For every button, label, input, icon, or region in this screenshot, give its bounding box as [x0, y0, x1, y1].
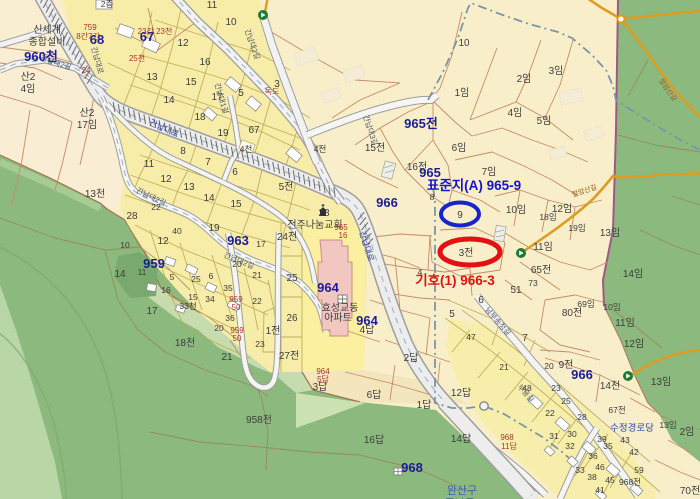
svg-text:11: 11	[138, 267, 147, 277]
svg-text:12임: 12임	[624, 337, 644, 350]
svg-text:24전: 24전	[277, 231, 297, 243]
svg-text:13임: 13임	[651, 375, 671, 388]
svg-text:1임: 1임	[455, 86, 470, 99]
svg-text:15: 15	[230, 199, 242, 210]
svg-text:964: 964	[317, 280, 339, 295]
svg-text:9: 9	[457, 210, 463, 221]
svg-text:5전: 5전	[279, 181, 294, 193]
svg-text:7: 7	[522, 333, 528, 344]
svg-text:완산구: 완산구	[447, 484, 477, 497]
svg-text:7: 7	[205, 157, 211, 168]
svg-text:8: 8	[430, 192, 435, 202]
svg-text:12: 12	[177, 38, 189, 49]
svg-text:70전: 70전	[680, 485, 700, 497]
svg-text:16: 16	[199, 57, 211, 68]
svg-text:31: 31	[549, 431, 559, 441]
svg-text:18천: 18천	[175, 337, 195, 349]
svg-text:958천: 958천	[246, 414, 272, 426]
svg-text:759: 759	[83, 23, 97, 32]
svg-text:17: 17	[256, 239, 266, 249]
svg-text:6: 6	[478, 295, 484, 306]
svg-text:11임: 11임	[533, 240, 553, 253]
svg-text:968: 968	[500, 433, 514, 442]
svg-text:965전: 965전	[404, 116, 438, 131]
svg-text:6임: 6임	[452, 141, 467, 154]
svg-text:13: 13	[146, 72, 158, 83]
svg-text:16: 16	[339, 231, 348, 240]
svg-text:10: 10	[120, 240, 130, 250]
svg-text:21: 21	[221, 352, 233, 363]
svg-text:22: 22	[252, 296, 262, 306]
svg-text:50: 50	[233, 334, 242, 343]
svg-text:표준지(A) 965-9: 표준지(A) 965-9	[427, 178, 521, 193]
svg-text:16답: 16답	[364, 434, 384, 446]
svg-text:23: 23	[551, 383, 561, 393]
svg-text:27전: 27전	[279, 350, 299, 362]
svg-text:18: 18	[194, 112, 206, 123]
svg-text:2임: 2임	[517, 72, 532, 85]
svg-text:43: 43	[620, 435, 630, 445]
svg-text:28: 28	[318, 208, 330, 219]
svg-text:59: 59	[634, 465, 644, 475]
svg-text:28: 28	[577, 412, 587, 422]
svg-text:19임: 19임	[568, 223, 585, 233]
svg-text:18임: 18임	[539, 212, 556, 222]
svg-text:신세계: 신세계	[33, 24, 61, 36]
svg-text:13임: 13임	[600, 226, 620, 239]
svg-text:14천: 14천	[600, 380, 620, 392]
svg-text:51: 51	[510, 285, 522, 296]
svg-text:963: 963	[227, 233, 249, 248]
svg-text:24: 24	[82, 66, 91, 75]
svg-text:6: 6	[232, 167, 238, 178]
svg-text:10임: 10임	[603, 302, 620, 312]
svg-text:16전: 16전	[407, 161, 427, 173]
svg-text:28: 28	[126, 211, 138, 222]
svg-text:19: 19	[208, 223, 220, 234]
svg-text:67전: 67전	[608, 405, 625, 415]
svg-text:9전: 9전	[559, 359, 574, 371]
svg-text:2임: 2임	[680, 425, 695, 438]
svg-text:10: 10	[225, 17, 237, 28]
svg-text:종합설비: 종합설비	[29, 36, 66, 48]
svg-text:50: 50	[232, 303, 241, 312]
svg-text:73: 73	[528, 278, 538, 288]
svg-text:15: 15	[185, 77, 197, 88]
svg-text:6: 6	[209, 271, 214, 281]
svg-text:5임: 5임	[537, 114, 552, 127]
svg-text:5: 5	[238, 88, 244, 99]
svg-text:46: 46	[595, 462, 605, 472]
svg-text:968: 968	[401, 460, 423, 475]
svg-text:65전: 65전	[531, 264, 551, 276]
svg-text:23간 23천: 23간 23천	[138, 26, 173, 36]
svg-text:38: 38	[587, 472, 597, 482]
svg-text:36: 36	[225, 313, 235, 323]
svg-text:34: 34	[205, 294, 215, 304]
svg-text:4천: 4천	[240, 144, 253, 154]
svg-text:10임: 10임	[506, 203, 526, 216]
svg-text:966: 966	[376, 195, 398, 210]
svg-text:4임: 4임	[21, 82, 36, 95]
svg-text:4전: 4전	[314, 144, 327, 154]
svg-text:33천: 33천	[179, 301, 196, 311]
svg-text:17임: 17임	[77, 118, 97, 131]
svg-text:11임: 11임	[615, 316, 635, 329]
svg-text:25: 25	[286, 273, 298, 284]
svg-text:산2: 산2	[80, 107, 95, 119]
svg-text:33: 33	[575, 465, 585, 475]
svg-text:20: 20	[214, 323, 224, 333]
svg-text:아파트: 아파트	[324, 312, 352, 324]
svg-text:4답: 4답	[360, 324, 375, 336]
svg-text:3임: 3임	[549, 64, 564, 77]
svg-text:19: 19	[217, 128, 229, 139]
svg-text:14: 14	[114, 269, 126, 280]
svg-text:21: 21	[499, 362, 509, 372]
svg-text:5: 5	[170, 272, 175, 282]
svg-text:25천: 25천	[129, 53, 145, 63]
svg-text:산2: 산2	[21, 71, 36, 83]
svg-text:14: 14	[203, 193, 215, 204]
svg-text:2층: 2층	[101, 0, 114, 9]
svg-text:17: 17	[146, 306, 158, 317]
svg-text:10: 10	[458, 38, 470, 49]
svg-text:47: 47	[466, 332, 476, 342]
svg-text:2답: 2답	[404, 352, 419, 364]
svg-text:11: 11	[207, 0, 218, 11]
svg-text:968전: 968전	[619, 477, 641, 487]
svg-text:21: 21	[252, 270, 262, 280]
svg-text:25: 25	[561, 396, 571, 406]
svg-text:41: 41	[595, 485, 605, 495]
svg-text:69임: 69임	[577, 299, 594, 309]
svg-text:36: 36	[588, 451, 598, 461]
svg-text:8: 8	[180, 146, 186, 157]
svg-text:7임: 7임	[482, 165, 497, 178]
svg-text:독도: 독도	[265, 87, 280, 96]
svg-text:35: 35	[223, 283, 233, 293]
svg-text:26: 26	[286, 313, 298, 324]
svg-text:13천: 13천	[85, 188, 105, 200]
svg-text:14임: 14임	[623, 267, 643, 280]
svg-text:1답: 1답	[417, 399, 432, 411]
svg-text:12: 12	[160, 174, 172, 185]
svg-text:45: 45	[605, 475, 615, 485]
svg-text:13: 13	[183, 182, 195, 193]
svg-text:12답: 12답	[451, 387, 471, 399]
svg-text:23: 23	[255, 339, 265, 349]
svg-text:966: 966	[571, 367, 593, 382]
svg-text:3전: 3전	[459, 247, 474, 259]
svg-text:25: 25	[191, 274, 201, 284]
svg-text:8간7간: 8간7간	[76, 31, 100, 41]
svg-text:12: 12	[157, 236, 169, 247]
svg-text:22: 22	[545, 408, 555, 418]
svg-text:16: 16	[161, 285, 171, 295]
svg-text:4임: 4임	[508, 106, 523, 119]
svg-text:5답: 5답	[317, 374, 329, 384]
svg-text:20: 20	[544, 361, 554, 371]
svg-text:수정경로당: 수정경로당	[610, 422, 654, 434]
svg-text:13임: 13임	[659, 420, 676, 430]
svg-text:14답: 14답	[451, 433, 471, 445]
svg-text:11: 11	[144, 159, 155, 170]
svg-text:1전: 1전	[266, 325, 281, 337]
svg-text:기호(1) 966-3: 기호(1) 966-3	[415, 273, 495, 288]
svg-text:35: 35	[603, 441, 613, 451]
svg-text:32: 32	[565, 441, 575, 451]
svg-text:42: 42	[629, 447, 639, 457]
svg-text:5: 5	[449, 309, 455, 320]
svg-text:30: 30	[567, 429, 577, 439]
svg-text:40: 40	[172, 226, 182, 236]
svg-text:11답: 11답	[501, 441, 517, 451]
svg-text:67: 67	[248, 125, 260, 136]
svg-text:6답: 6답	[367, 389, 382, 401]
svg-text:14: 14	[163, 95, 175, 106]
